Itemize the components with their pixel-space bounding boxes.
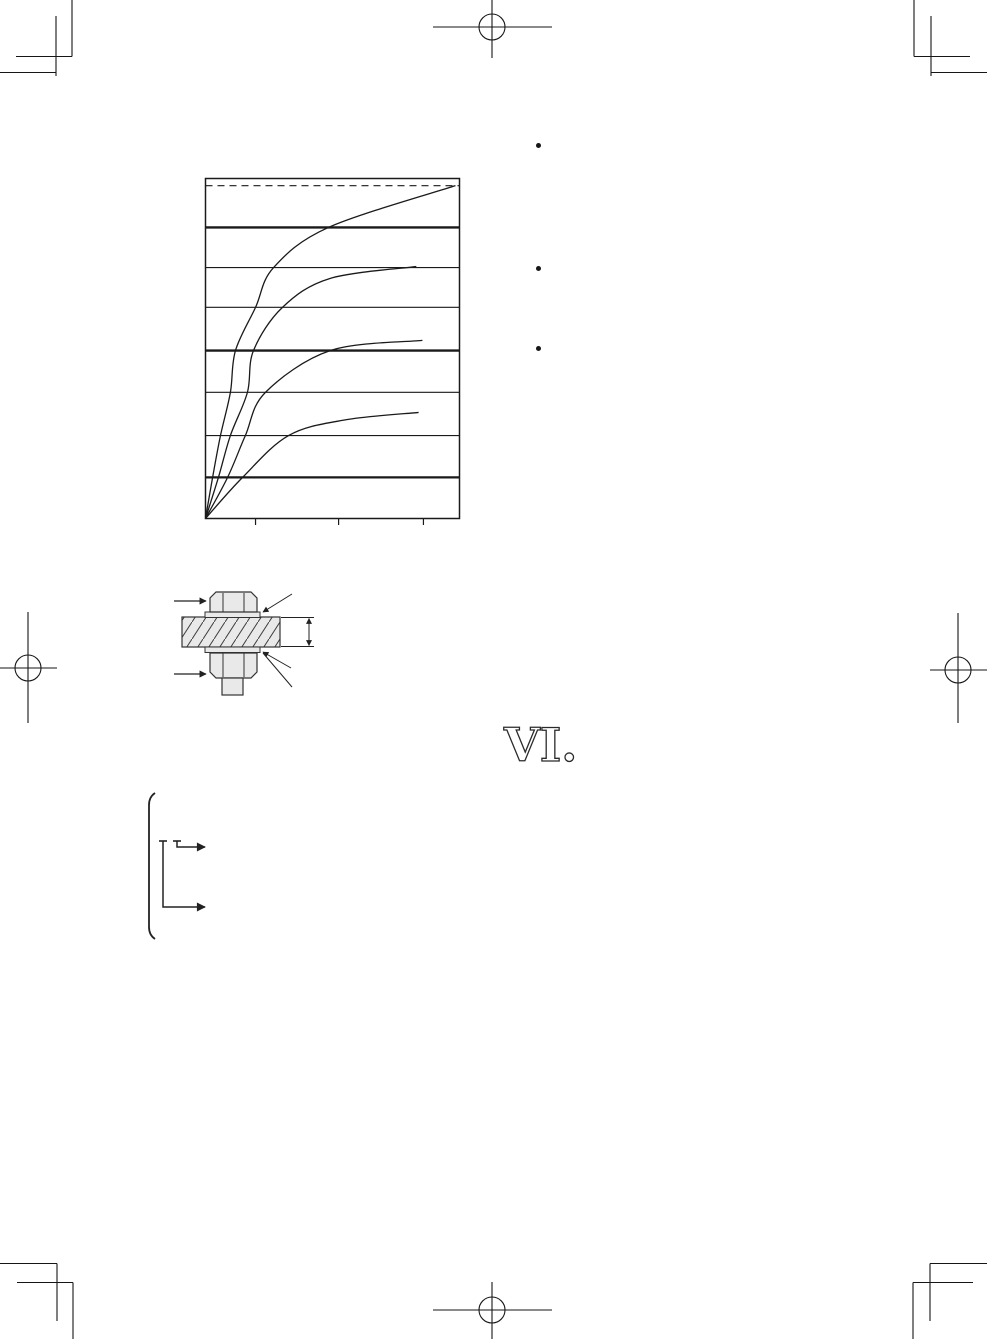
options-bracket-figure [142,786,227,946]
branch-arrow-top [177,841,205,847]
trim-mark-top-left [0,0,72,76]
bullet-icon [536,143,541,148]
bolt-cross-section-figure [170,588,320,700]
curve-1 [206,186,456,519]
trim-mark-bottom-left [0,1264,73,1339]
chart-canvas [204,177,462,529]
callout-leader-nut-lower [263,653,292,687]
section-heading-figure: VI. [498,716,588,774]
section-numeral: VI. [503,718,577,772]
clamped-plate-section [182,617,280,647]
registration-marks [0,0,987,1339]
curve-3 [206,340,423,518]
curve-4 [206,412,419,518]
crosshair-mark-right-center [930,613,987,723]
plate-thickness-dimension [281,618,314,647]
bullet-icon [536,346,541,351]
bolt-thread-end [222,678,243,695]
bolt-head [210,592,257,612]
manual-page: VI. [0,0,987,1339]
crosshair-mark-left-center [0,612,57,723]
plot-border [206,179,460,519]
tightening-curves-chart [204,177,462,529]
bullet-icon [536,266,541,271]
crosshair-mark-bottom-center [433,1282,552,1339]
trim-mark-bottom-right [913,1264,987,1339]
callout-leader-washer-bottom [263,652,291,668]
branch-arrow-bottom [163,841,205,907]
trim-mark-top-right [914,0,987,76]
washer-bottom [205,647,260,653]
crosshair-mark-top-center [433,0,552,58]
callout-leader-washer-top [263,594,292,612]
nut [210,653,257,678]
washer-top [205,612,260,618]
grouping-bracket [149,793,155,939]
